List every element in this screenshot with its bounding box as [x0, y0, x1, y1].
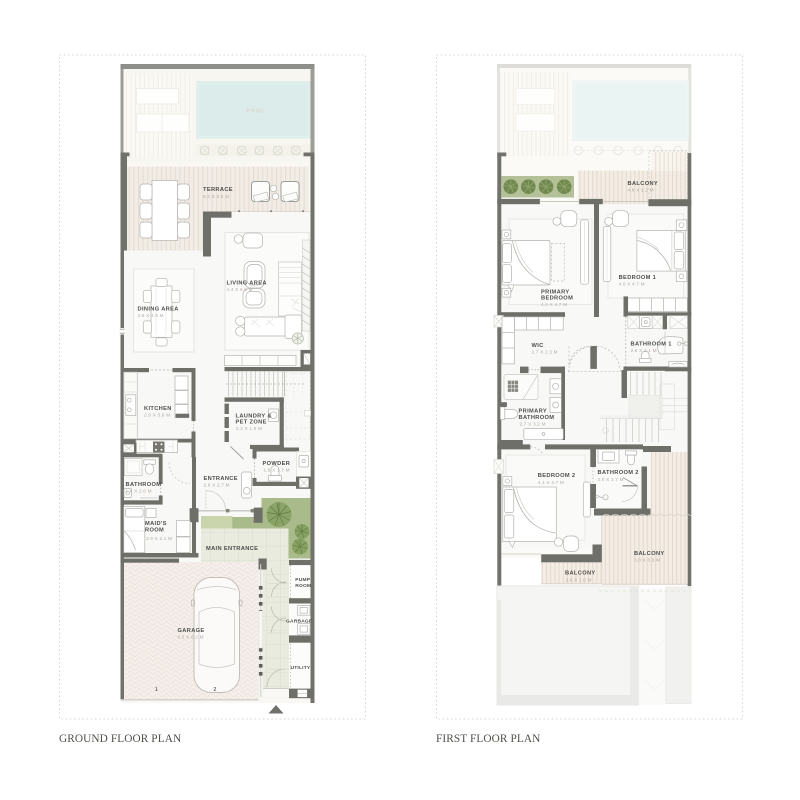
svg-text:PET ZONE: PET ZONE	[236, 420, 267, 426]
svg-text:GARBAGE: GARBAGE	[286, 618, 313, 624]
svg-text:BALCONY: BALCONY	[634, 551, 665, 557]
svg-text:4.0 X 4.7 M: 4.0 X 4.7 M	[541, 302, 567, 307]
svg-text:2.0 X 2.7 M: 2.0 X 2.7 M	[598, 477, 624, 482]
svg-text:UTILITY: UTILITY	[291, 665, 311, 671]
svg-text:2.7 X 2.3 M: 2.7 X 2.3 M	[532, 349, 558, 354]
svg-text:GARAGE: GARAGE	[178, 628, 205, 634]
svg-text:1.8 X 1.7 M: 1.8 X 1.7 M	[264, 468, 290, 473]
svg-text:FIRST FLOOR PLAN: FIRST FLOOR PLAN	[436, 733, 540, 745]
svg-text:2: 2	[214, 687, 217, 693]
svg-text:BATHROOM 1: BATHROOM 1	[631, 341, 672, 347]
svg-text:2.6 X 2.1 M: 2.6 X 2.1 M	[631, 348, 657, 353]
svg-text:MAIN ENTRANCE: MAIN ENTRANCE	[206, 546, 258, 552]
svg-text:POWDER: POWDER	[263, 461, 291, 467]
svg-text:PUMP: PUMP	[295, 577, 310, 583]
svg-text:PRIMARY: PRIMARY	[519, 408, 547, 414]
svg-text:GROUND FLOOR PLAN: GROUND FLOOR PLAN	[59, 733, 181, 745]
svg-text:2.9 X 3.6 M: 2.9 X 3.6 M	[144, 413, 170, 418]
svg-text:2.2 X 1.9 M: 2.2 X 1.9 M	[236, 426, 262, 431]
svg-text:2.9 X 2.1 M: 2.9 X 2.1 M	[146, 536, 172, 541]
svg-text:LAUNDRY &: LAUNDRY &	[236, 413, 272, 419]
svg-text:PRIMARY: PRIMARY	[541, 289, 569, 295]
svg-text:BALCONY: BALCONY	[628, 181, 659, 187]
svg-text:4.4 X 6.5 M: 4.4 X 6.5 M	[227, 287, 253, 292]
svg-text:2.7 X 3.2 M: 2.7 X 3.2 M	[520, 421, 546, 426]
svg-text:4.1 X 4.7 M: 4.1 X 4.7 M	[538, 480, 564, 485]
svg-text:KITCHEN: KITCHEN	[144, 406, 172, 412]
svg-text:BEDROOM: BEDROOM	[541, 296, 573, 302]
svg-text:ROOM: ROOM	[145, 528, 164, 534]
svg-text:BATHROOM: BATHROOM	[126, 482, 162, 488]
svg-text:6.5 X 6.2 M: 6.5 X 6.2 M	[178, 635, 204, 640]
svg-text:ENTRANCE: ENTRANCE	[204, 476, 238, 482]
svg-text:8.2 X 3.5 M: 8.2 X 3.5 M	[203, 194, 229, 199]
svg-text:TERRACE: TERRACE	[203, 187, 233, 193]
svg-text:4.8 X 1.2 M: 4.8 X 1.2 M	[628, 188, 654, 193]
svg-text:MAID'S: MAID'S	[145, 521, 167, 527]
svg-text:2.6 X 1.0 M: 2.6 X 1.0 M	[566, 577, 592, 582]
svg-text:DINING AREA: DINING AREA	[138, 307, 179, 313]
svg-text:POOL: POOL	[247, 109, 266, 115]
svg-text:1: 1	[155, 687, 158, 693]
svg-text:BEDROOM 2: BEDROOM 2	[538, 473, 576, 479]
svg-text:4.0 X 4.7 M: 4.0 X 4.7 M	[619, 281, 645, 286]
svg-text:LIVING AREA: LIVING AREA	[227, 281, 267, 287]
svg-text:BEDROOM 1: BEDROOM 1	[619, 275, 657, 281]
svg-text:3.8 X 3.0 M: 3.8 X 3.0 M	[634, 558, 660, 563]
svg-text:ROOM: ROOM	[295, 583, 311, 589]
svg-text:2.6 X 2.7 M: 2.6 X 2.7 M	[204, 483, 230, 488]
svg-text:BATHROOM: BATHROOM	[519, 415, 555, 421]
svg-text:BATHROOM 2: BATHROOM 2	[598, 470, 639, 476]
svg-text:BALCONY: BALCONY	[565, 571, 596, 577]
svg-text:3.8 X 4.9 M: 3.8 X 4.9 M	[138, 313, 164, 318]
svg-text:WIC: WIC	[532, 343, 544, 349]
svg-text:1.6 X 2.0 M: 1.6 X 2.0 M	[126, 489, 152, 494]
